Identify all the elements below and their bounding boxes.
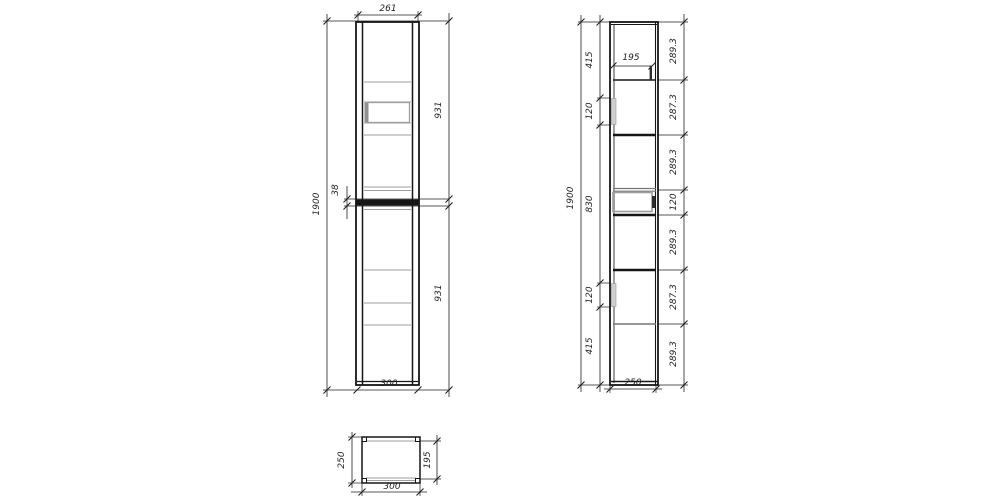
dim-plan-width: 300 — [351, 482, 427, 496]
plan-view: 250 195 300 — [337, 432, 441, 496]
front-divider-band — [356, 200, 419, 206]
dim-label-289-3: 289.3 — [669, 229, 679, 255]
dim-label-side-250: 250 — [624, 378, 641, 388]
dim-label-120-bottom: 120 — [585, 286, 595, 303]
side-rail-top — [612, 99, 617, 125]
dim-front-height: 1900 — [312, 14, 331, 397]
dim-label-plan-195: 195 — [423, 451, 433, 468]
dim-label-side-1900: 1900 — [566, 186, 576, 209]
dim-side-height: 1900 — [566, 15, 585, 392]
dim-label-931-upper: 931 — [434, 101, 444, 118]
front-view: 261 1900 38 931 931 — [312, 4, 453, 397]
dim-side-left-sections: 415 120 830 120 415 — [585, 15, 604, 392]
dim-label-289-1: 289.3 — [669, 38, 679, 64]
dim-label-front-300: 300 — [380, 379, 397, 389]
dim-label-931-lower: 931 — [434, 284, 444, 301]
dim-front-width-top: 261 — [354, 4, 422, 21]
dim-label-287-1: 287.3 — [669, 94, 679, 120]
drawing-canvas: 261 1900 38 931 931 — [0, 0, 1000, 504]
side-view: 195 1900 415 120 830 120 415 — [566, 14, 688, 393]
dim-label-415-bottom: 415 — [585, 337, 595, 354]
plan-body — [362, 437, 420, 483]
dim-plan-inner-depth: 195 — [420, 435, 441, 485]
dim-label-plan-300: 300 — [383, 482, 400, 492]
dim-label-289-4: 289.3 — [669, 341, 679, 367]
dim-label-front-1900: 1900 — [312, 192, 322, 215]
dim-plan-depth: 250 — [337, 432, 362, 488]
side-drawer — [613, 193, 652, 212]
dim-label-287-2: 287.3 — [669, 284, 679, 310]
dim-side-shelf-inner: 195 — [610, 53, 656, 80]
dim-label-38: 38 — [331, 184, 341, 196]
dim-front-divider: 38 — [331, 184, 351, 219]
dim-label-830: 830 — [585, 195, 595, 212]
dim-label-120-top: 120 — [585, 102, 595, 119]
technical-drawing: 261 1900 38 931 931 — [0, 0, 1000, 504]
dim-label-261: 261 — [379, 4, 396, 14]
dim-label-195-side: 195 — [622, 53, 639, 63]
dim-label-289-2: 289.3 — [669, 149, 679, 175]
dim-front-sections: 931 931 — [434, 13, 453, 397]
dim-label-415-top: 415 — [585, 51, 595, 68]
front-drawer-panel — [366, 103, 410, 123]
dim-label-120-drawer: 120 — [669, 193, 679, 210]
dim-side-right-sections: 289.3 287.3 289.3 120 289.3 287.3 289.3 — [669, 14, 688, 392]
side-drawer-stop — [652, 196, 655, 208]
side-rail-bottom — [612, 284, 617, 307]
dim-label-plan-250: 250 — [337, 451, 347, 468]
